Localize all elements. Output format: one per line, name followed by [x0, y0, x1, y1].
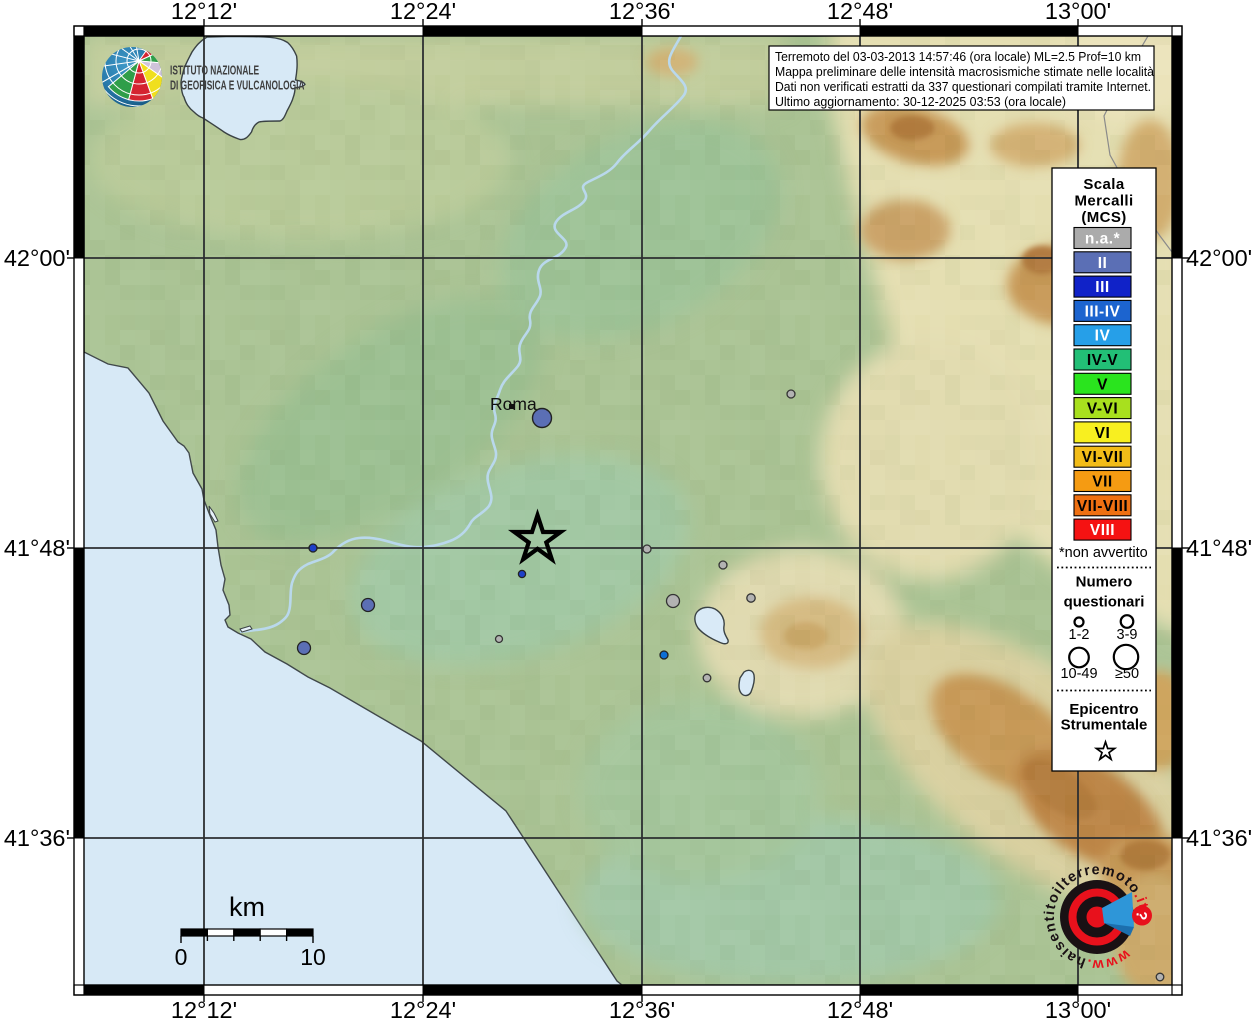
svg-text:12°24': 12°24'	[390, 997, 456, 1023]
svg-text:41°36': 41°36'	[4, 825, 70, 851]
svg-text:12°36': 12°36'	[609, 0, 675, 24]
svg-text:V-VI: V-VI	[1087, 401, 1118, 418]
svg-text:IV-V: IV-V	[1087, 352, 1118, 369]
svg-text:ISTITUTO NAZIONALE: ISTITUTO NAZIONALE	[170, 64, 259, 78]
svg-text:42°00': 42°00'	[1186, 245, 1252, 271]
svg-text:Numero: Numero	[1076, 574, 1133, 591]
svg-text:Epicentro: Epicentro	[1069, 701, 1138, 718]
svg-text:13°00': 13°00'	[1045, 997, 1111, 1023]
svg-text:questionari: questionari	[1064, 594, 1145, 611]
svg-text:(MCS): (MCS)	[1081, 209, 1126, 226]
svg-text:Strumentale: Strumentale	[1061, 717, 1148, 734]
svg-text:n.a.*: n.a.*	[1085, 231, 1121, 248]
svg-text:DI GEOFISICA E VULCANOLOGIA: DI GEOFISICA E VULCANOLOGIA	[170, 79, 305, 93]
svg-text:12°48': 12°48'	[827, 997, 893, 1023]
svg-text:0: 0	[175, 944, 188, 970]
svg-text:km: km	[229, 892, 265, 922]
svg-text:13°00': 13°00'	[1045, 0, 1111, 24]
svg-text:41°36': 41°36'	[1186, 825, 1252, 851]
svg-text:*non avvertito: *non avvertito	[1059, 545, 1148, 561]
svg-text:12°12': 12°12'	[171, 997, 237, 1023]
svg-text:Roma: Roma	[490, 394, 537, 414]
svg-text:VII: VII	[1092, 474, 1112, 491]
svg-text:12°36': 12°36'	[609, 997, 675, 1023]
svg-text:III-IV: III-IV	[1085, 303, 1121, 320]
svg-text:VI: VI	[1095, 425, 1111, 442]
svg-text:12°12': 12°12'	[171, 0, 237, 24]
svg-text:Terremoto del 03-03-2013 14:57: Terremoto del 03-03-2013 14:57:46 (ora l…	[775, 49, 1141, 64]
svg-text:12°24': 12°24'	[390, 0, 456, 24]
svg-text:10: 10	[300, 944, 326, 970]
svg-text:41°48': 41°48'	[1186, 535, 1252, 561]
svg-text:≥50: ≥50	[1115, 666, 1139, 682]
svg-text:Dati non verificati estratti d: Dati non verificati estratti da 337 ques…	[775, 79, 1151, 94]
svg-text:Scala: Scala	[1083, 176, 1124, 193]
svg-text:VIII: VIII	[1090, 522, 1115, 539]
svg-text:Ultimo aggiornamento: 30-12-20: Ultimo aggiornamento: 30-12-2025 03:53 (…	[775, 94, 1066, 109]
svg-text:1-2: 1-2	[1069, 627, 1090, 643]
svg-text:II: II	[1098, 255, 1108, 272]
svg-text:Mappa preliminare delle intens: Mappa preliminare delle intensità macros…	[775, 64, 1155, 79]
svg-text:IV: IV	[1095, 328, 1111, 345]
svg-text:42°00': 42°00'	[4, 245, 70, 271]
svg-text:V: V	[1097, 376, 1108, 393]
svg-text:VII-VIII: VII-VIII	[1077, 498, 1128, 515]
svg-text:III: III	[1095, 279, 1109, 296]
svg-text:Mercalli: Mercalli	[1074, 193, 1133, 210]
svg-text:10-49: 10-49	[1060, 666, 1097, 682]
svg-text:41°48': 41°48'	[4, 535, 70, 561]
svg-text:3-9: 3-9	[1117, 627, 1138, 643]
svg-text:VI-VII: VI-VII	[1082, 449, 1124, 466]
svg-text:12°48': 12°48'	[827, 0, 893, 24]
